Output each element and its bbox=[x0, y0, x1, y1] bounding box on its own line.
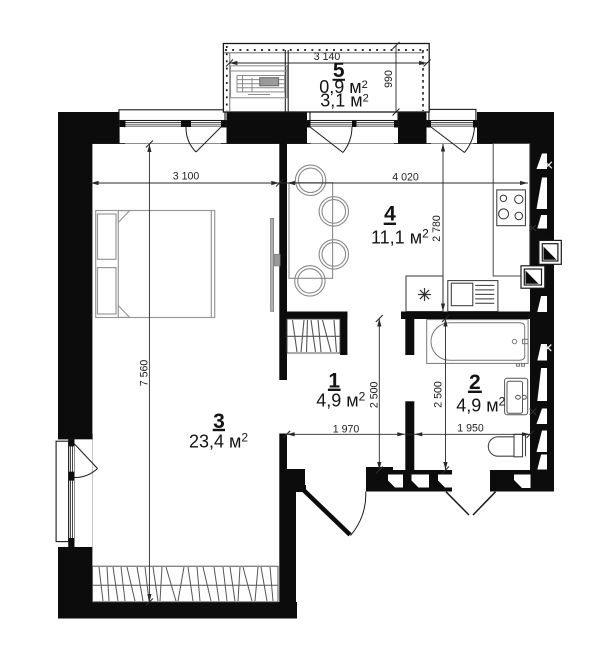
svg-text:1 970: 1 970 bbox=[333, 423, 360, 435]
svg-text:3 100: 3 100 bbox=[173, 171, 200, 183]
svg-text:2 500: 2 500 bbox=[432, 381, 444, 408]
svg-text:3,1 м2: 3,1 м2 bbox=[320, 91, 369, 111]
svg-text:7 560: 7 560 bbox=[139, 360, 151, 387]
svg-text:4: 4 bbox=[384, 203, 396, 226]
svg-text:2 500: 2 500 bbox=[369, 381, 381, 408]
svg-text:23,4 м2: 23,4 м2 bbox=[189, 431, 248, 452]
svg-text:1 950: 1 950 bbox=[457, 423, 484, 435]
svg-text:4,9 м2: 4,9 м2 bbox=[456, 395, 505, 416]
svg-text:2 780: 2 780 bbox=[431, 215, 443, 242]
svg-text:4 020: 4 020 bbox=[392, 172, 419, 184]
svg-text:990: 990 bbox=[383, 70, 395, 88]
svg-text:4,9 м2: 4,9 м2 bbox=[316, 390, 365, 411]
svg-text:11,1 м2: 11,1 м2 bbox=[371, 227, 429, 248]
